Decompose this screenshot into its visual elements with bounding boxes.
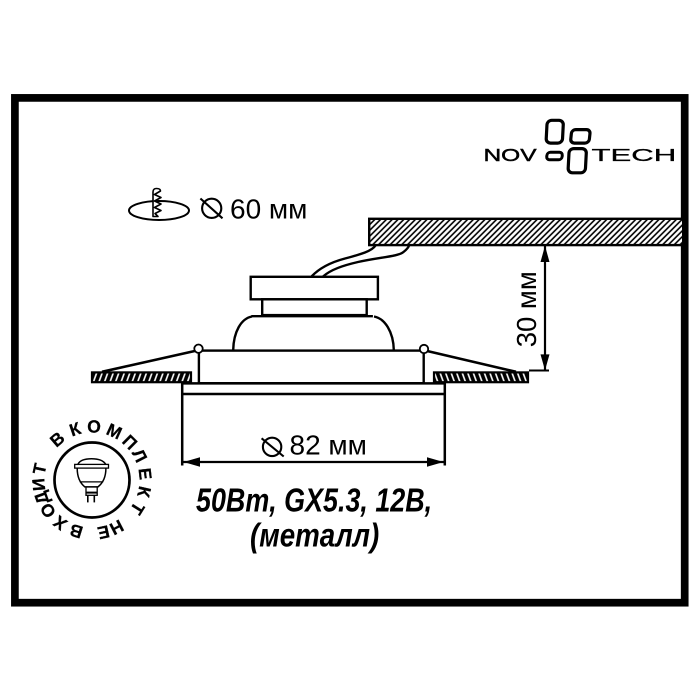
svg-text:NOV: NOV xyxy=(484,145,538,165)
svg-text:82 мм: 82 мм xyxy=(290,430,367,461)
svg-text:О: О xyxy=(87,416,101,437)
svg-text:30 мм: 30 мм xyxy=(511,271,542,347)
svg-text:50Вm, GX5.3, 12В,: 50Вm, GX5.3, 12В, xyxy=(196,483,432,519)
svg-text:TECH: TECH xyxy=(592,146,677,165)
svg-text:Е: Е xyxy=(135,467,156,481)
svg-text:(меmалл): (меmалл) xyxy=(250,517,379,554)
svg-text:60 мм: 60 мм xyxy=(230,194,307,225)
svg-text:И: И xyxy=(28,477,49,491)
